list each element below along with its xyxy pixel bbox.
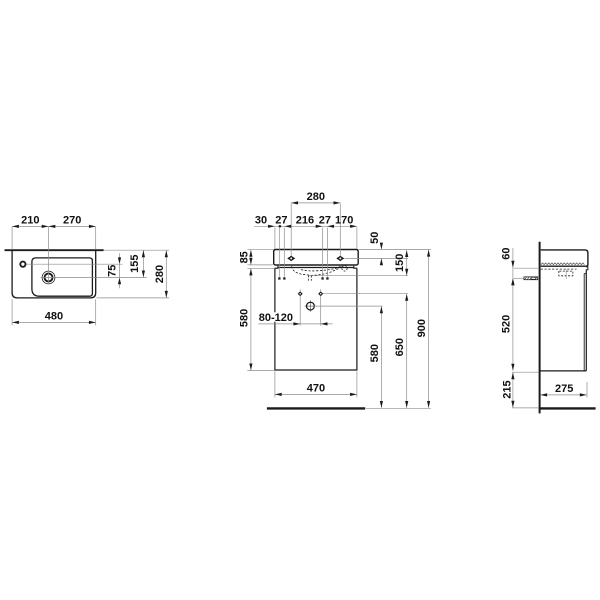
svg-text:75: 75 [106, 265, 118, 277]
svg-text:580: 580 [369, 344, 381, 362]
svg-text:470: 470 [307, 383, 325, 395]
svg-text:480: 480 [45, 311, 63, 323]
svg-text:580: 580 [238, 309, 250, 327]
svg-text:650: 650 [394, 338, 406, 356]
svg-text:275: 275 [555, 383, 573, 395]
svg-text:150: 150 [394, 254, 406, 272]
svg-text:520: 520 [500, 315, 512, 333]
svg-text:27: 27 [275, 214, 287, 226]
svg-text:216: 216 [296, 214, 314, 226]
svg-text:27: 27 [319, 214, 331, 226]
svg-text:215: 215 [501, 380, 513, 398]
svg-text:210: 210 [21, 215, 39, 227]
svg-text:30: 30 [255, 214, 267, 226]
svg-text:170: 170 [335, 214, 353, 226]
svg-text:60: 60 [500, 247, 512, 259]
svg-text:85: 85 [238, 251, 250, 263]
svg-text:280: 280 [307, 191, 325, 203]
svg-text:155: 155 [129, 255, 141, 273]
svg-text:80-120: 80-120 [259, 312, 293, 324]
svg-text:50: 50 [369, 232, 381, 244]
svg-text:270: 270 [63, 215, 81, 227]
svg-text:900: 900 [416, 319, 428, 337]
svg-text:280: 280 [154, 265, 166, 283]
